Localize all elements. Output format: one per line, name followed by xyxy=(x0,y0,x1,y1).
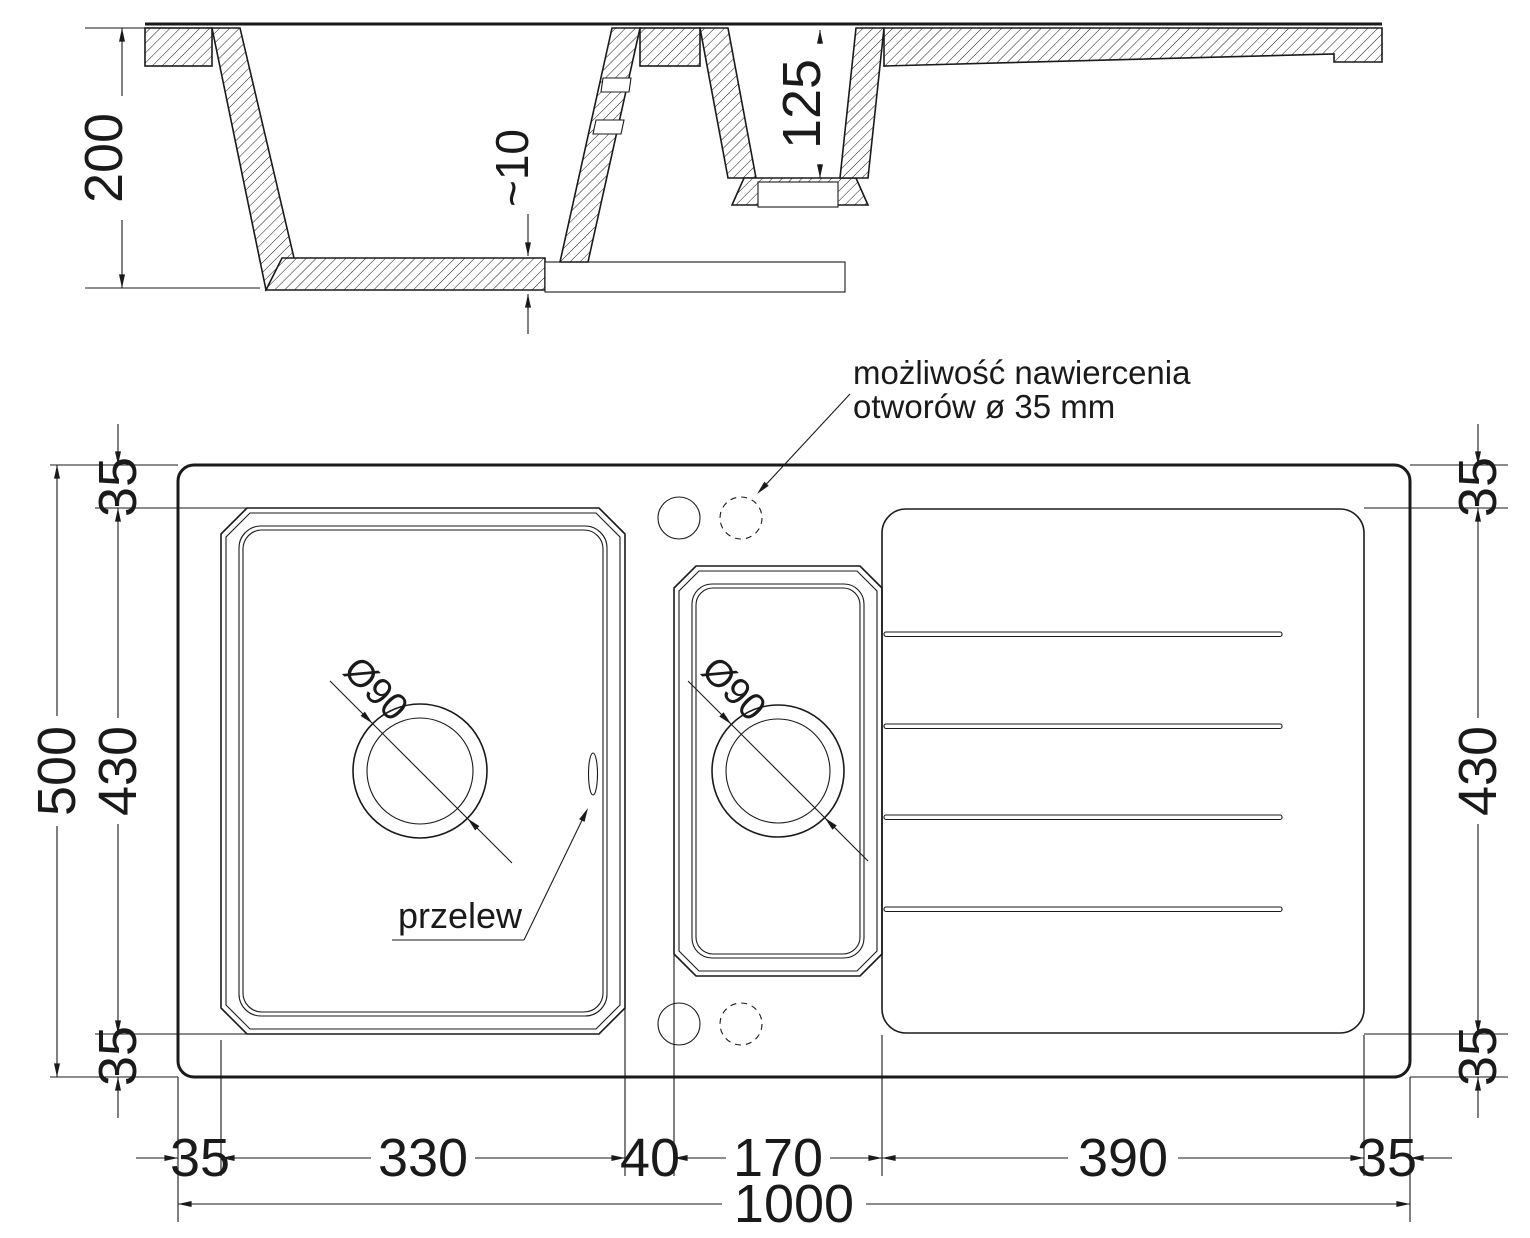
drill-note-leader xyxy=(760,394,850,491)
optional-hole-bottom-dashed xyxy=(720,1003,762,1045)
drainer-outline xyxy=(882,509,1364,1033)
dim-bottom-390: 390 xyxy=(1078,1128,1168,1188)
dim-10-label: ~10 xyxy=(486,129,538,207)
section-overflow-gap-1 xyxy=(601,78,631,92)
tap-hole-top xyxy=(658,497,700,539)
overflow-annotation: przelew xyxy=(392,807,591,940)
arrowhead xyxy=(755,482,769,496)
drainer-groove xyxy=(884,907,1282,912)
dim-bottom-40: 40 xyxy=(620,1128,680,1188)
overflow-label: przelew xyxy=(398,895,523,936)
plan-dimensions: 500 35 430 35 35 430 35 35 xyxy=(27,424,1508,1234)
drill-note-line2: otworów ø 35 mm xyxy=(853,388,1115,425)
section-view: 200 ~10 125 xyxy=(74,24,1382,334)
plan-drainer xyxy=(882,509,1364,1033)
dim-left-430: 430 xyxy=(88,726,148,816)
section-drainer-slab xyxy=(884,28,1382,66)
main-drain-dim-line xyxy=(330,681,512,863)
drainer-groove xyxy=(884,724,1282,729)
small-drain-diameter-label: Ø90 xyxy=(693,649,773,729)
dim-right-430: 430 xyxy=(1448,726,1508,816)
plan-outer-edge xyxy=(178,465,1410,1077)
drainer-groove xyxy=(884,632,1282,637)
section-bottom-recess xyxy=(545,262,845,292)
section-small-bowl-recess xyxy=(758,182,838,207)
dim-1000-label: 1000 xyxy=(734,1174,854,1234)
section-divider-flange xyxy=(640,28,700,66)
section-divider-wall xyxy=(560,28,640,262)
dim-200-label: 200 xyxy=(74,113,134,203)
section-left-flange xyxy=(145,28,212,66)
drill-note: możliwość nawiercenia otworów ø 35 mm xyxy=(755,354,1191,496)
drill-note-line1: możliwość nawiercenia xyxy=(853,354,1191,391)
dim-right-margins: 35 430 35 xyxy=(1448,424,1508,1118)
dim-left-total: 500 xyxy=(27,465,87,1077)
plan-view: Ø90 Ø90 xyxy=(178,354,1410,1077)
main-bowl-outer-contour xyxy=(221,508,625,1034)
small-drain-dim-line xyxy=(688,681,868,861)
plan-small-bowl: Ø90 xyxy=(674,566,882,976)
dim-section-small-bowl-depth: 125 xyxy=(772,30,832,178)
overflow-leader xyxy=(524,812,586,940)
section-main-bowl-bottom xyxy=(266,258,545,290)
main-bowl-inner-rim-outer xyxy=(239,526,607,1016)
main-drain-diameter-label: Ø90 xyxy=(335,649,415,729)
arrowhead xyxy=(579,807,591,822)
dim-section-bottom-thickness: ~10 xyxy=(486,129,538,334)
arrowhead xyxy=(465,816,479,830)
overflow-slot xyxy=(589,753,598,795)
technical-drawing-page: 200 ~10 125 Ø90 xyxy=(0,0,1530,1238)
sink-drawing-svg: 200 ~10 125 Ø90 xyxy=(0,0,1530,1238)
dim-bottom-total: 1000 xyxy=(178,1174,1410,1234)
section-small-bowl-right-wall xyxy=(840,28,884,178)
tap-hole-bottom xyxy=(658,1003,700,1045)
drainer-groove xyxy=(884,815,1282,820)
dim-bottom-330: 330 xyxy=(378,1128,468,1188)
dim-left-margins: 35 430 35 xyxy=(88,424,148,1118)
optional-hole-top-dashed xyxy=(720,497,762,539)
section-overflow-gap-2 xyxy=(593,120,624,134)
section-small-bowl-left-wall xyxy=(700,28,756,178)
plan-main-bowl: Ø90 xyxy=(221,508,625,1034)
main-bowl-bevel-contour xyxy=(226,513,620,1029)
dim-bottom-35-right: 35 xyxy=(1357,1128,1417,1188)
dim-500-label: 500 xyxy=(27,726,87,816)
dim-125-label: 125 xyxy=(772,59,832,149)
section-main-bowl-left-wall xyxy=(212,28,294,290)
